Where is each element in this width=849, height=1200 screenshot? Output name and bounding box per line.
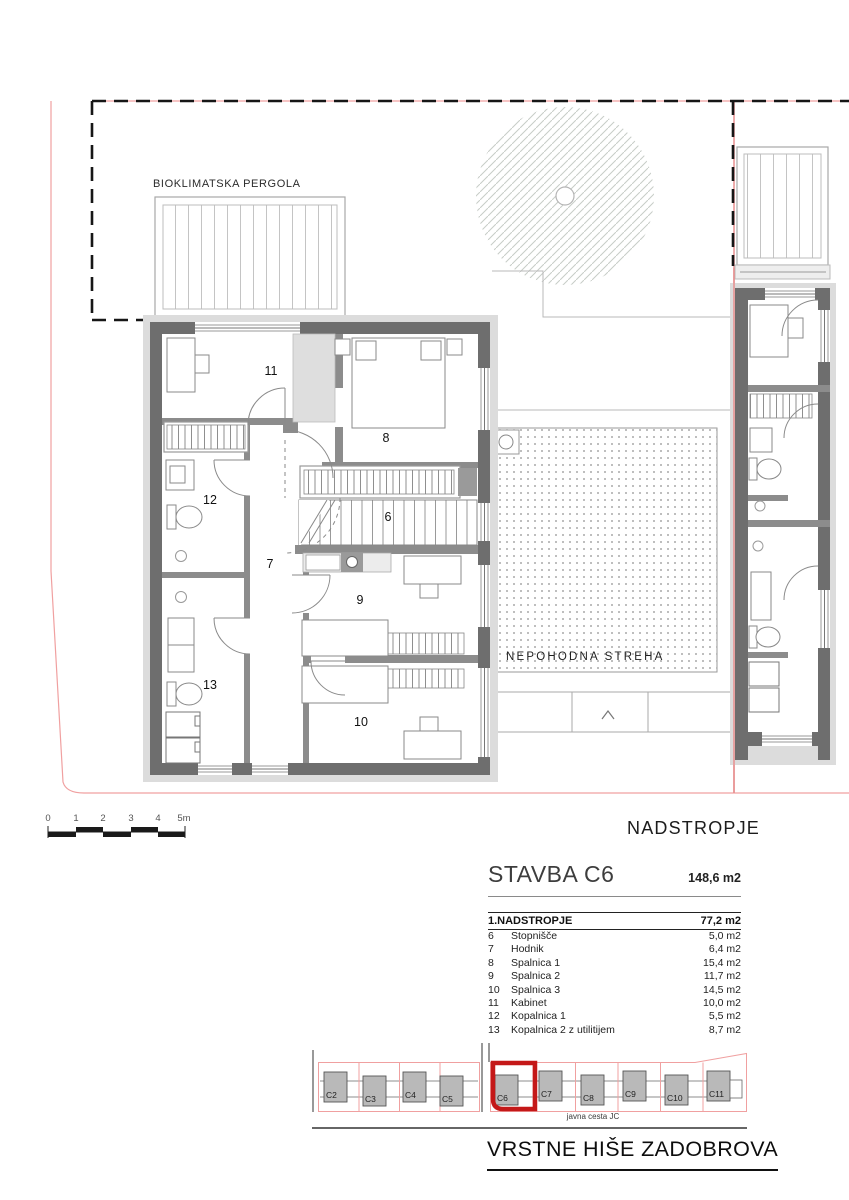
legend-row: 10Spalnica 314,5 m2 bbox=[488, 984, 741, 997]
toilet-tank bbox=[167, 682, 176, 706]
legend-row: 6Stopnišče5,0 m2 bbox=[488, 930, 741, 943]
project-title: VRSTNE HIŠE ZADOBROVA bbox=[487, 1137, 778, 1171]
tree-icon bbox=[476, 107, 654, 285]
toilet-tank bbox=[167, 505, 176, 529]
pergola-label: BIOKLIMATSKA PERGOLA bbox=[153, 178, 301, 190]
neighbour-pergola bbox=[735, 147, 830, 279]
wardrobe bbox=[388, 669, 464, 688]
roof-label: NEPOHODNA STREHA bbox=[506, 651, 665, 663]
building-title: STAVBA C6 bbox=[488, 861, 614, 888]
wardrobe bbox=[388, 633, 464, 654]
legend-row: 11Kabinet10,0 m2 bbox=[488, 997, 741, 1010]
building-c6 bbox=[143, 315, 498, 782]
building-area: 148,6 m2 bbox=[688, 871, 741, 885]
pergola bbox=[155, 197, 345, 317]
site-unit-label-C7: C7 bbox=[541, 1089, 552, 1099]
scale-label: 2 bbox=[100, 813, 105, 824]
flat-roof-area bbox=[493, 428, 735, 732]
site-unit-label-C11: C11 bbox=[709, 1089, 724, 1099]
room-number-12: 12 bbox=[203, 493, 217, 507]
wardrobe bbox=[164, 422, 248, 452]
toilet-tank bbox=[749, 458, 757, 480]
toilet-bowl bbox=[756, 627, 780, 647]
floor-area: 77,2 m2 bbox=[701, 915, 741, 927]
room-number-10: 10 bbox=[354, 715, 368, 729]
site-unit-label-C9: C9 bbox=[625, 1089, 636, 1099]
wardrobe bbox=[300, 466, 477, 498]
wardrobe bbox=[750, 394, 812, 418]
room-table: 1.NADSTROPJE 77,2 m2 6Stopnišče5,0 m27Ho… bbox=[488, 912, 741, 1037]
window bbox=[195, 322, 300, 334]
legend-row: 7Hodnik6,4 m2 bbox=[488, 943, 741, 956]
scale-bar bbox=[48, 826, 185, 838]
washer bbox=[749, 662, 779, 686]
site-unit-label-C5: C5 bbox=[442, 1094, 453, 1104]
legend-row: 13Kopalnica 2 z utilitijem8,7 m2 bbox=[488, 1024, 741, 1037]
site-plan bbox=[312, 1043, 747, 1128]
scale-label: 1 bbox=[73, 813, 78, 824]
legend-row: 12Kopalnica 15,5 m2 bbox=[488, 1010, 741, 1023]
room-number-13: 13 bbox=[203, 678, 217, 692]
shaft-niche bbox=[303, 553, 391, 572]
site-unit-label-C6: C6 bbox=[497, 1093, 508, 1103]
scale-label: 5m bbox=[177, 813, 190, 824]
room-number-8: 8 bbox=[383, 431, 390, 445]
room-number-6: 6 bbox=[385, 510, 392, 524]
room-number-9: 9 bbox=[357, 593, 364, 607]
floor-plan-sheet: BIOKLIMATSKA PERGOLA NEPOHODNA STREHA NA… bbox=[0, 0, 849, 1200]
site-unit-label-C4: C4 bbox=[405, 1090, 416, 1100]
sink bbox=[750, 428, 772, 452]
toilet-bowl bbox=[176, 506, 202, 528]
bed bbox=[335, 338, 462, 428]
dryer bbox=[749, 688, 779, 712]
floor-label: 1.NADSTROPJE bbox=[488, 915, 572, 927]
legend-row: 9Spalnica 211,7 m2 bbox=[488, 970, 741, 983]
site-unit-label-C8: C8 bbox=[583, 1093, 594, 1103]
site-unit-label-C3: C3 bbox=[365, 1094, 376, 1104]
room-number-11: 11 bbox=[265, 364, 278, 378]
floor-title: NADSTROPJE bbox=[627, 818, 760, 839]
site-unit-label-C2: C2 bbox=[326, 1090, 337, 1100]
legend-block: STAVBA C6 148,6 m2 1.NADSTROPJE 77,2 m2 … bbox=[488, 861, 741, 1037]
legend-row: 8Spalnica 115,4 m2 bbox=[488, 957, 741, 970]
shower-drain bbox=[176, 551, 187, 562]
scale-label: 0 bbox=[45, 813, 50, 824]
vanity bbox=[751, 572, 771, 620]
scale-label: 3 bbox=[128, 813, 133, 824]
neighbour-unit bbox=[730, 268, 836, 793]
roof-edge-lines bbox=[492, 271, 733, 410]
room-number-7: 7 bbox=[267, 557, 274, 571]
scale-label: 4 bbox=[155, 813, 160, 824]
toilet-bowl bbox=[176, 683, 202, 705]
site-unit-label-C10: C10 bbox=[667, 1093, 683, 1103]
shower-drain bbox=[176, 592, 187, 603]
toilet-bowl bbox=[757, 459, 781, 479]
road-label: javna cesta JC bbox=[567, 1112, 619, 1121]
